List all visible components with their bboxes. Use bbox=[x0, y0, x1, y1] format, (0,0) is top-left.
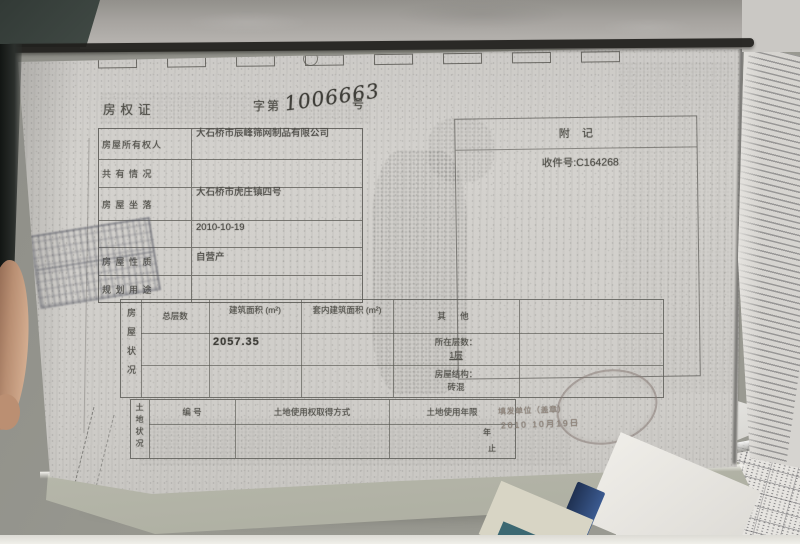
hole-mark bbox=[512, 52, 551, 63]
stamp-line bbox=[36, 251, 153, 271]
grid-line bbox=[149, 424, 515, 425]
grid-line bbox=[209, 300, 210, 397]
grid-line bbox=[301, 300, 302, 397]
grid-line bbox=[141, 300, 142, 397]
certificate-number-prefix: 字第 bbox=[253, 97, 281, 114]
field-value: 大石桥市辰峰筛网制品有限公司 bbox=[192, 124, 362, 154]
grid-line bbox=[393, 300, 394, 397]
land-status-table: 土地状况 编 号 土地使用权取得方式 土地使用年限 年 止 bbox=[130, 399, 516, 459]
building-area-value: 2057.35 bbox=[213, 336, 260, 348]
end-mark: 止 bbox=[488, 443, 496, 454]
field-value: 自营产 bbox=[192, 248, 362, 275]
grid-line bbox=[235, 400, 236, 458]
hole-mark bbox=[236, 55, 275, 66]
column-header: 套内建筑面积 (m²) bbox=[303, 305, 391, 316]
column-header: 土地使用年限 bbox=[391, 407, 513, 418]
hole-mark bbox=[581, 51, 620, 62]
certificate-title: 房权证 bbox=[103, 99, 156, 118]
hole-mark bbox=[374, 54, 413, 65]
notes-box: 附 记 收件号:C164268 bbox=[454, 115, 701, 379]
grid-line bbox=[149, 400, 150, 458]
field-value: 2010-10-19 bbox=[192, 221, 362, 247]
certificate-number-suffix: 号 bbox=[352, 95, 364, 112]
field-value: 大石桥市虎庄镇四号 bbox=[192, 183, 362, 215]
hole-mark bbox=[98, 57, 137, 68]
column-header: 土地使用权取得方式 bbox=[237, 407, 387, 418]
dark-background-corner bbox=[0, 0, 100, 47]
desk-edge-strip bbox=[0, 535, 800, 544]
column-header: 总层数 bbox=[143, 311, 207, 322]
other-cell-text: 砖混 bbox=[397, 381, 515, 393]
field-label: 房 屋 坐 落 bbox=[99, 188, 192, 220]
section-label-land: 土地状况 bbox=[134, 403, 145, 451]
column-header: 建筑面积 (m²) bbox=[211, 305, 299, 316]
field-label: 房屋所有权人 bbox=[99, 129, 192, 159]
hole-mark bbox=[443, 53, 482, 64]
hole-mark bbox=[167, 56, 206, 67]
grid-line bbox=[389, 400, 390, 458]
column-header: 编 号 bbox=[151, 407, 233, 418]
photo-scene: 房权证 字第 1006663 号 房屋所有权人 大石桥市辰峰筛网制品有限公司 共… bbox=[0, 0, 800, 544]
circle-mark bbox=[303, 51, 318, 66]
grid-line bbox=[456, 146, 697, 150]
receipt-number: 收件号:C164268 bbox=[542, 154, 619, 170]
notes-header: 附 记 bbox=[455, 123, 696, 142]
section-label-house: 房屋状况 bbox=[125, 308, 138, 384]
table-row: 房 屋 坐 落 大石桥市虎庄镇四号 bbox=[99, 188, 362, 221]
year-mark: 年 bbox=[483, 427, 491, 438]
field-label: 共 有 情 况 bbox=[99, 160, 192, 187]
table-row: 房屋所有权人 大石桥市辰峰筛网制品有限公司 bbox=[99, 129, 362, 160]
